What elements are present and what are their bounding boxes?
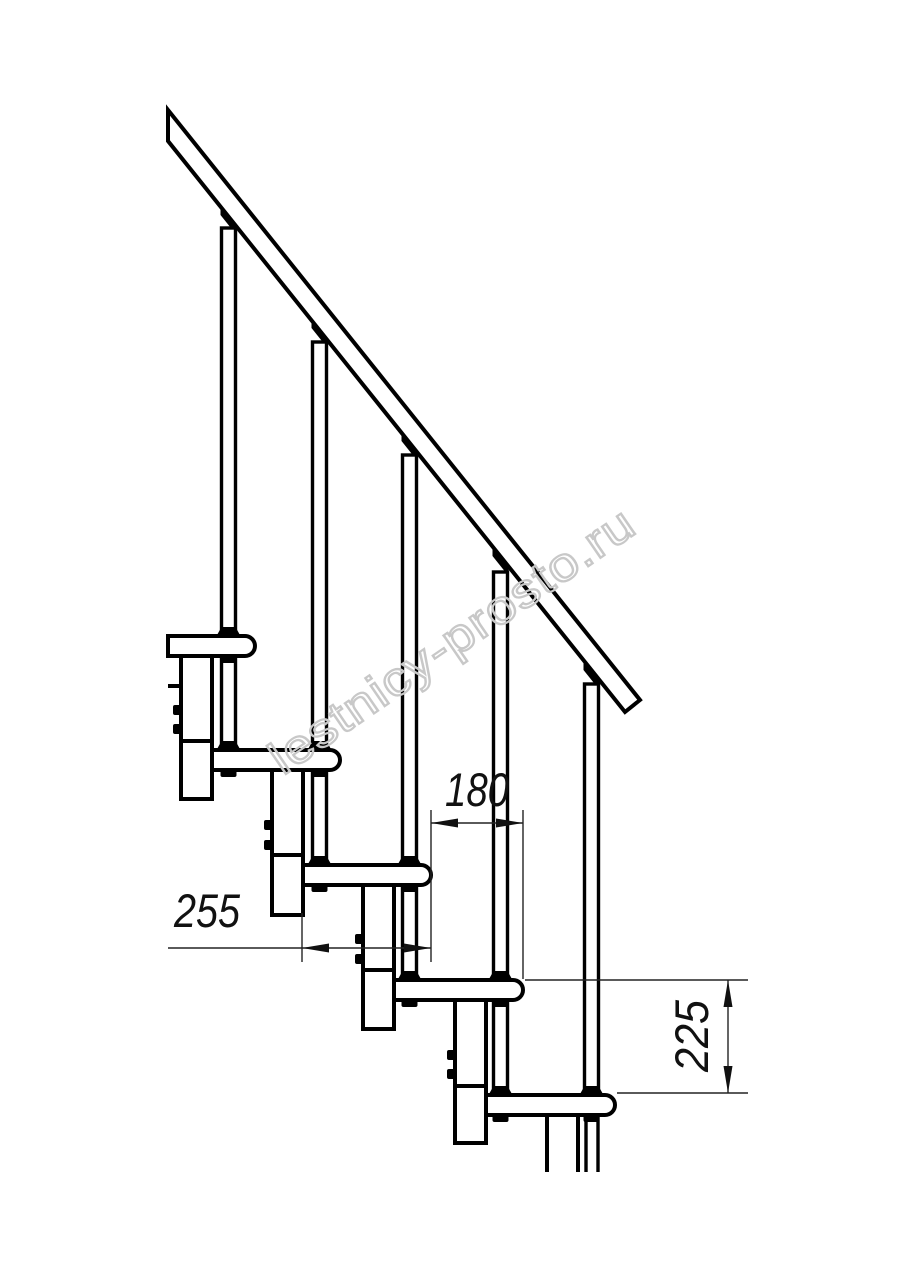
rod-nut [402,1000,418,1007]
tread-1 [168,636,255,656]
rod-nut [493,1115,509,1122]
tread-5 [486,1095,615,1115]
rod-nut [221,770,237,777]
stair-technical-drawing: 180 255 225 lestnicy-prosto.ru [0,0,914,1280]
drawing-canvas: 180 255 225 lestnicy-prosto.ru [0,0,914,1280]
module-4-tab [447,1069,455,1079]
dimension-label-step-run: 180 [445,763,509,816]
rod-nut [402,885,418,892]
module-4-tab [447,1050,455,1060]
baluster-1 [222,228,236,636]
rod-nut [584,1115,600,1122]
baluster-2 [313,342,327,750]
rod-nut [493,1000,509,1007]
baluster-5 [585,684,599,1095]
support-rod-2 [313,770,327,865]
module-3-tab [355,954,363,964]
support-module-1 [181,656,212,799]
support-module-2 [272,770,303,915]
dimension-label-tread-depth: 255 [173,884,241,937]
module-3-tab [355,934,363,944]
rod-nut [312,885,328,892]
support-module-3 [363,885,394,1029]
module-1-tab [173,705,181,715]
module-1-tab [173,724,181,734]
module-2-tab [264,840,272,850]
support-module-4 [455,1000,486,1143]
support-rod-4 [494,1000,508,1095]
rod-nut [221,656,237,663]
tread-4 [394,980,523,1000]
rod-nut [312,770,328,777]
support-rod-3 [403,885,417,980]
dimension-label-step-rise: 225 [665,999,718,1073]
module-2-tab [264,820,272,830]
support-rod-1 [222,656,236,750]
tread-3 [303,865,431,885]
module-1-pin [168,684,181,688]
